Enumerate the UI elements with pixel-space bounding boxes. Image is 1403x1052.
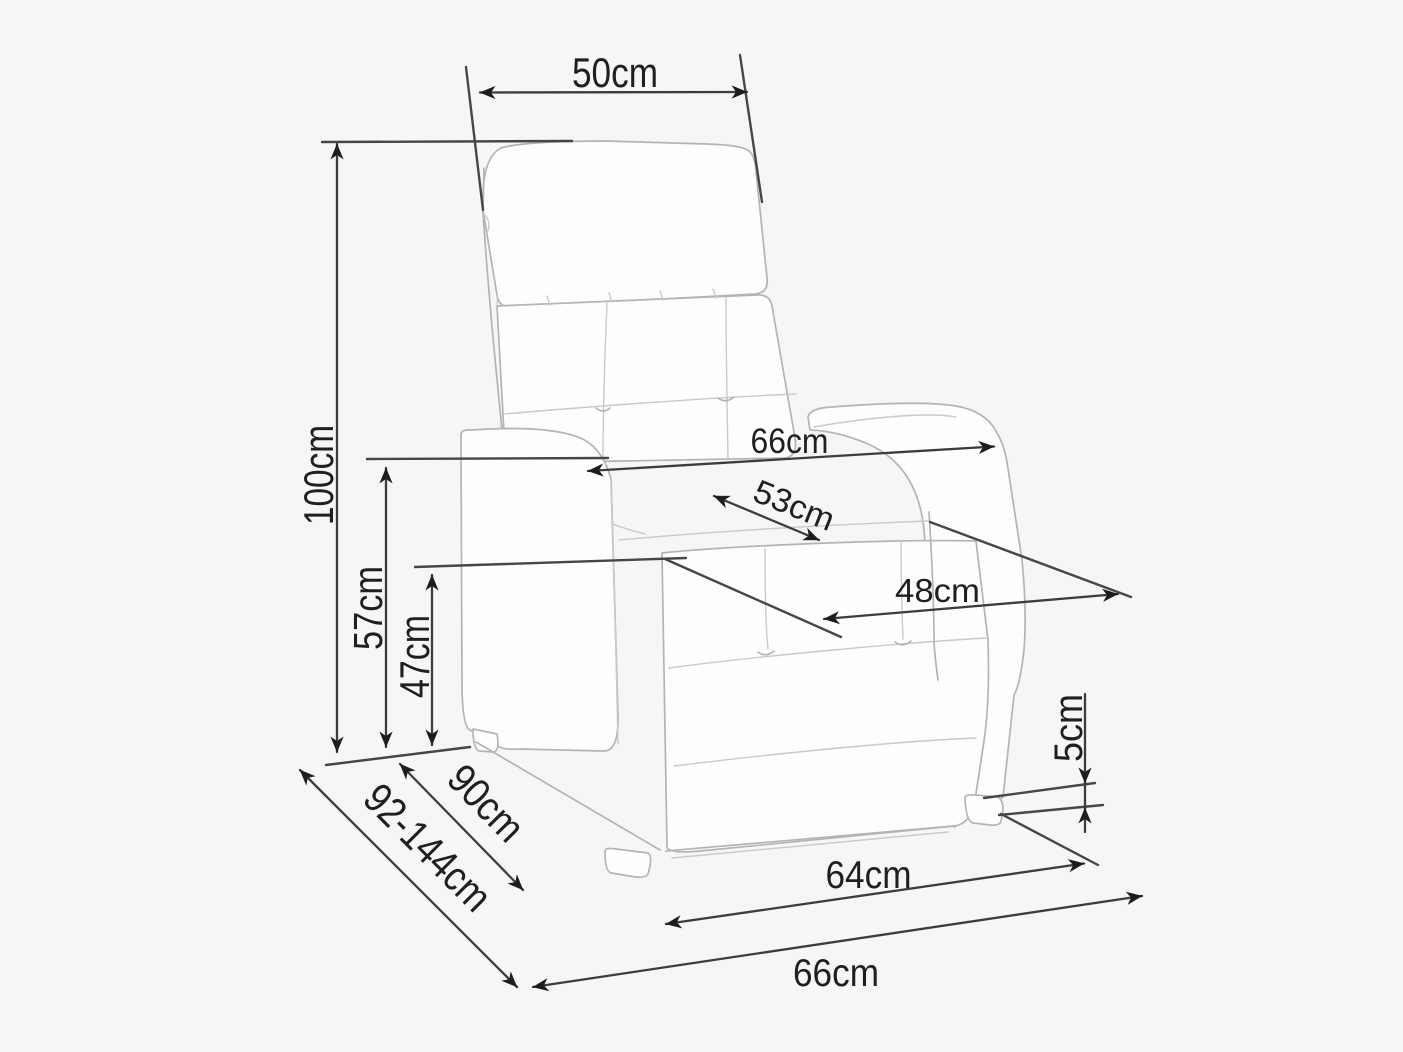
svg-text:50cm: 50cm bbox=[572, 49, 658, 96]
svg-text:47cm: 47cm bbox=[391, 615, 438, 698]
svg-text:64cm: 64cm bbox=[826, 854, 912, 897]
svg-text:5cm: 5cm bbox=[1047, 694, 1091, 762]
svg-text:66cm: 66cm bbox=[751, 422, 829, 461]
svg-text:48cm: 48cm bbox=[895, 572, 980, 609]
svg-text:100cm: 100cm bbox=[295, 425, 342, 525]
svg-text:66cm: 66cm bbox=[793, 952, 879, 995]
svg-text:57cm: 57cm bbox=[345, 566, 391, 650]
